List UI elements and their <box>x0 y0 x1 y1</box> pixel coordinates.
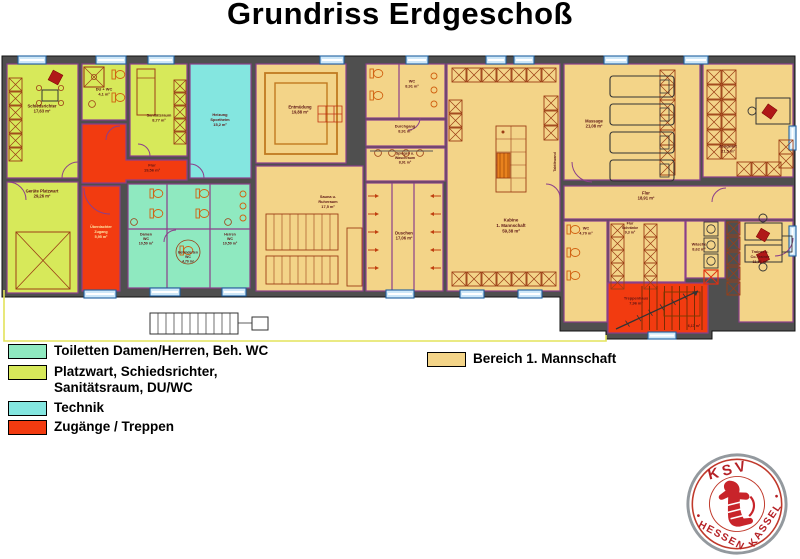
room-label-zeugwart: Zeugwart21,5 m² <box>719 143 737 153</box>
room-label-treppe_area: 6,17 m² <box>688 324 701 328</box>
room-label-taktikwand: Taktikwand <box>553 152 557 171</box>
legend-swatch-bereich <box>427 352 466 367</box>
room-wc_mitte <box>366 64 445 118</box>
legend-swatch-zugaenge <box>8 420 47 435</box>
legend-item-technik: Technik <box>8 400 104 416</box>
legend-item-zugaenge: Zugänge / Treppen <box>8 419 174 435</box>
legend-swatch-platzwart <box>8 365 47 380</box>
legend-swatch-toiletten <box>8 344 47 359</box>
room-zeugwart <box>703 64 793 177</box>
legend-label-platzwart: Platzwart, Schiedsrichter, Sanitätsraum,… <box>54 364 218 396</box>
room-label-duschen: Duschen17,06 m² <box>395 230 413 240</box>
room-label-waesche: Wäsche8,62 m² <box>692 242 708 252</box>
club-logo: KSV HESSEN KASSEL <box>682 450 792 558</box>
legend-item-bereich: Bereich 1. Mannschaft <box>427 351 616 367</box>
legend-item-toiletten: Toiletten Damen/Herren, Beh. WC <box>8 343 268 359</box>
external-stairs-icon <box>150 313 238 334</box>
legend-label-technik: Technik <box>54 400 104 416</box>
legend-label-zugaenge: Zugänge / Treppen <box>54 419 174 435</box>
legend-label-toiletten: Toiletten Damen/Herren, Beh. WC <box>54 343 268 359</box>
room-label-trainer: Trainer u.Co-Trainer11,56 m² <box>751 250 771 264</box>
legend-label-bereich: Bereich 1. Mannschaft <box>473 351 616 367</box>
island-icon <box>502 131 505 134</box>
legend-item-platzwart: Platzwart, Schiedsrichter, Sanitätsraum,… <box>8 364 218 396</box>
entry-step-icon <box>252 317 268 330</box>
room-label-massage: Massage21,08 m² <box>585 118 603 128</box>
legend-swatch-technik <box>8 401 47 416</box>
floor-plan: Schiedsrichter17,63 m²DU + WC4,1 m²Sanit… <box>0 0 800 559</box>
room-flur_right <box>564 186 793 219</box>
